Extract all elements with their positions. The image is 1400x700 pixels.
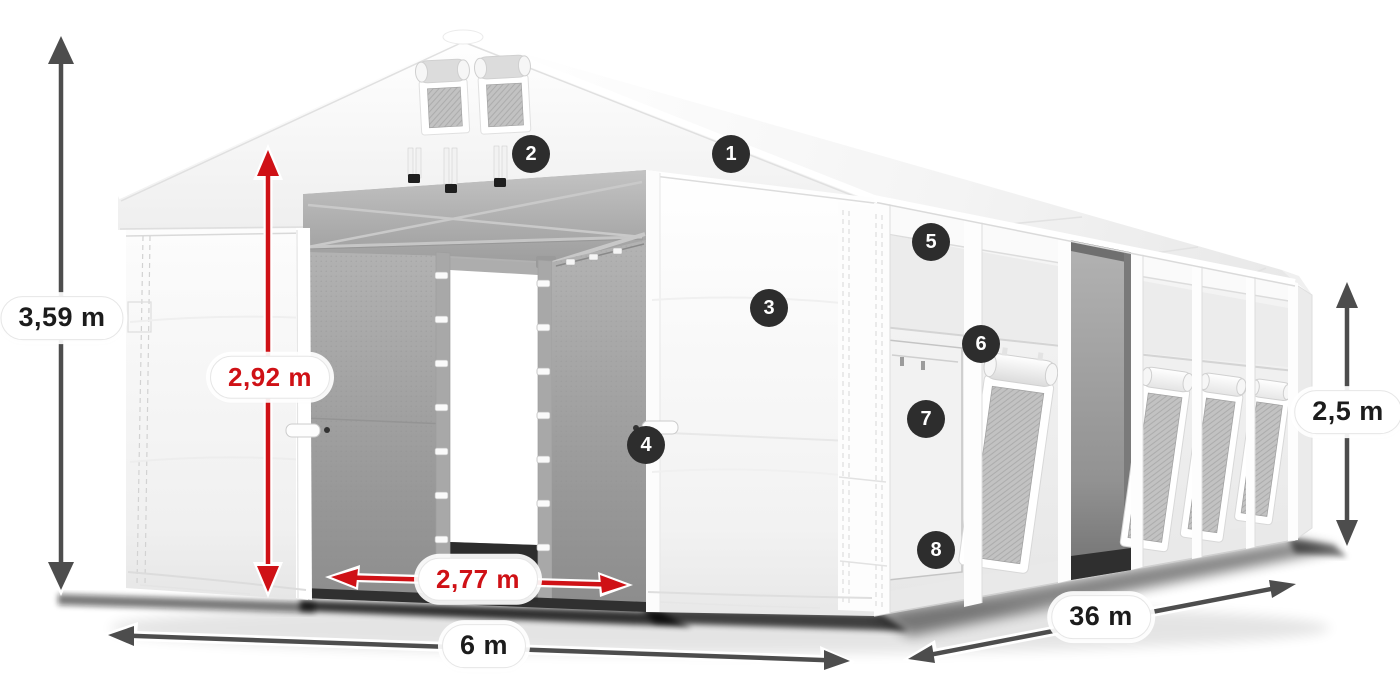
door-post-left xyxy=(435,252,450,602)
hotspot-3[interactable]: 3 xyxy=(750,289,788,327)
tent-dimension-diagram: 1 2 3 4 5 6 7 8 3,59 m 2,92 m 2,77 m 6 m… xyxy=(0,0,1400,700)
hotspot-5[interactable]: 5 xyxy=(912,223,950,261)
gable-window-1 xyxy=(415,59,473,136)
front-right-door xyxy=(633,170,888,616)
hotspot-1[interactable]: 1 xyxy=(712,135,750,173)
tent-illustration xyxy=(0,0,1400,700)
hotspot-8[interactable]: 8 xyxy=(917,531,955,569)
front-left-wall xyxy=(126,228,330,600)
gable-window-2 xyxy=(474,55,534,135)
label-total-height: 3,59 m xyxy=(0,296,123,340)
label-entrance-height: 2,92 m xyxy=(210,356,330,399)
label-side-height: 2,5 m xyxy=(1294,390,1400,434)
hotspot-6[interactable]: 6 xyxy=(962,325,1000,363)
front-corner-pillar xyxy=(838,202,888,612)
strap-buckle-icon xyxy=(408,174,420,183)
strap-buckle-icon xyxy=(445,184,457,193)
strap-buckle-icon xyxy=(494,178,506,187)
zipper-pull-icon xyxy=(921,361,925,370)
hotspot-4[interactable]: 4 xyxy=(627,426,665,464)
label-entrance-width: 2,77 m xyxy=(418,558,538,601)
front-opening-interior xyxy=(303,170,646,614)
label-width: 6 m xyxy=(442,624,526,668)
hotspot-7[interactable]: 7 xyxy=(907,400,945,438)
zipper-pull-icon xyxy=(900,357,904,366)
ridge-cap xyxy=(443,30,483,44)
label-length: 36 m xyxy=(1051,595,1151,639)
hotspot-2[interactable]: 2 xyxy=(512,135,550,173)
